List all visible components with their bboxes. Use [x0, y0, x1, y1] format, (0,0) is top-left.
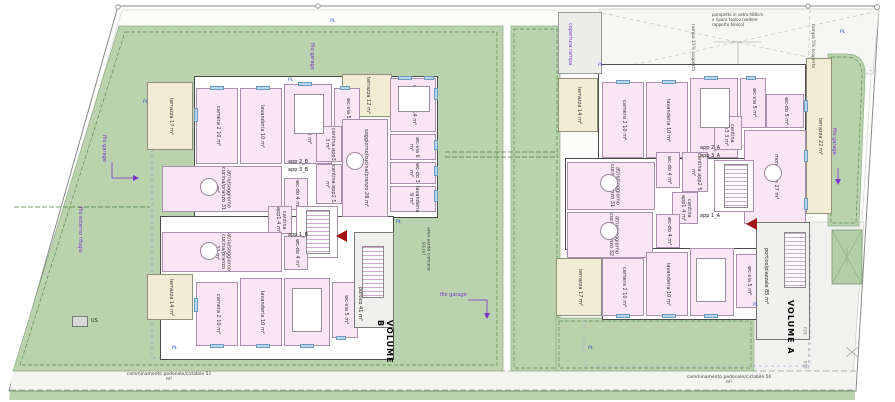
volume-b-title: VOLUME B — [376, 320, 394, 372]
window-marker — [616, 80, 630, 84]
pl-marker: PL — [840, 30, 845, 35]
bed — [398, 86, 430, 112]
room-label: lavanderia 10 m² — [664, 263, 670, 306]
room-label: cantina app1 4 m² — [679, 193, 691, 223]
bed — [696, 258, 726, 302]
room-label: lavanderia 10 m² — [664, 99, 670, 142]
window-marker — [746, 76, 756, 80]
label-app2a: app 2_A — [700, 146, 740, 152]
window-marker — [662, 80, 676, 84]
stairs-b-portico — [362, 246, 384, 298]
window-marker — [804, 150, 808, 162]
rampa-15-label: rampa 15% scoperta — [690, 22, 695, 74]
copertura-rampa-label: copertura rampa — [566, 18, 572, 70]
room-label: wc-do 5 m² — [782, 97, 788, 125]
window-marker — [662, 314, 676, 318]
room-a-lavanderia-lower: lavanderia 10 m² — [646, 252, 688, 316]
stairs-a-core — [724, 164, 748, 208]
bed — [700, 88, 730, 128]
room-label: wc-do 3 m² — [407, 163, 419, 183]
room-b-wcdo4-lower: wc-do 4 m² — [284, 236, 308, 270]
room-label: lavanderia 10 m² — [258, 105, 264, 148]
terrace-a-22: terrazza 22 m² — [806, 58, 832, 214]
window-marker — [256, 344, 270, 348]
room-label: wc-do 4 m² — [665, 156, 671, 184]
filo-esterno-rifugio-label: filo esterno rifugio — [76, 206, 82, 254]
room-b-lavanderia-lower: lavanderia 10 m² — [240, 278, 282, 346]
room-a-wcdo4-upper: wc-do 4 m² — [656, 152, 680, 188]
window-marker — [398, 76, 412, 80]
round-table — [764, 164, 782, 182]
room-label: wc-via 5 m² — [745, 266, 751, 295]
room-label: soggiorno/cucina/pranzo 28 m² — [362, 129, 368, 207]
pl-marker: PL — [172, 346, 177, 351]
window-marker — [340, 86, 350, 90]
filo-garage-label-north: filo garage — [308, 34, 314, 78]
room-label: wc-do 4 m² — [293, 239, 299, 267]
window-marker — [434, 140, 438, 150]
stairs-a-portico — [784, 232, 806, 288]
terrace-label: terrazza 14 m² — [575, 87, 581, 124]
bed — [292, 288, 322, 332]
us-exit-box — [72, 316, 88, 327]
terrace-b-17: terrazza 17 m² — [147, 82, 193, 150]
camminamento-west-label: camminamento pedonale/ciclabile 51 m² — [126, 372, 212, 382]
window-marker — [434, 166, 438, 176]
window-marker — [194, 108, 198, 122]
terrace-label: terrazza 12 m² — [364, 77, 370, 114]
room-b-cantina-app1: cantina app1 4 m² — [268, 206, 292, 234]
terrace-label: terrazza 17 m² — [576, 269, 582, 306]
window-marker — [194, 298, 198, 312]
window-marker — [616, 314, 630, 318]
lawn-south — [556, 318, 754, 371]
pl-marker: PL — [396, 220, 401, 225]
camminamento-east-label: camminamento pedonale/ciclabile 56 m² — [686, 375, 772, 385]
filo-garage-label-center: filo garage — [440, 293, 486, 299]
terrace-label: terrazza 22 m² — [816, 118, 822, 155]
room-label: lavanderia 10 m² — [258, 291, 264, 334]
room-label: camera 2 10 m² — [620, 267, 626, 307]
room-b-camera2-upper: camera 2 10 m² — [196, 88, 238, 164]
room-a-wcdo5: wc-do 5 m² — [766, 94, 804, 128]
room-label: wc-via 5 m² — [750, 88, 756, 117]
terrace-a-17: terrazza 17 m² — [556, 258, 602, 316]
window-marker — [298, 82, 312, 86]
window-marker — [804, 198, 808, 210]
window-marker — [336, 336, 346, 340]
window-marker — [424, 76, 434, 80]
stairs-b-core — [306, 210, 330, 254]
room-b-wcvia6: wc-via 6 m² — [390, 134, 436, 160]
pl-marker: PL — [330, 19, 335, 24]
portico-a-label: portico/piazzale 85 m² — [762, 246, 768, 306]
rampa-5-label: rampa 5% scoperta — [810, 20, 815, 72]
room-a-camera2-lower: camera 2 10 m² — [602, 258, 644, 316]
terrace-label: terrazza 14 m² — [167, 279, 173, 316]
window-marker — [210, 344, 224, 348]
round-table — [600, 174, 618, 192]
pl-marker: PL — [588, 346, 593, 351]
terrace-label: terrazza 17 m² — [167, 98, 173, 135]
ramp-cover-box — [558, 12, 602, 74]
round-table — [200, 178, 218, 196]
label-app3a: app 3_A — [700, 154, 740, 160]
room-label: cantina app3 3 m² — [323, 127, 335, 161]
room-label: lavanderia 9 m² — [407, 186, 419, 212]
verge-strip — [9, 391, 855, 400]
pl-marker: PL — [598, 63, 603, 68]
room-b-lavanderia9: lavanderia 9 m² — [390, 186, 436, 212]
room-label: cantina app2 5 m² — [323, 165, 335, 203]
room-a-lavanderia-upper: lavanderia 10 m² — [646, 82, 688, 158]
label-app1b: app 1_B — [288, 233, 324, 239]
pl-marker: PL — [753, 303, 758, 308]
room-b-camera2-lower: camera 2 10 m² — [196, 282, 238, 346]
room-label: camera 2 10 m² — [214, 294, 220, 334]
lawn-middle — [511, 26, 560, 371]
entrance-marker-icon — [746, 218, 757, 230]
volume-a-title: VOLUME A — [786, 300, 795, 358]
window-marker — [804, 100, 808, 112]
room-b-atrio32: atrio/soggiorno cucina/pranzo 32 m² — [162, 232, 282, 272]
entrance-marker-icon — [336, 230, 347, 242]
window-marker — [704, 76, 718, 80]
room-a-wcdo4-lower: wc-do 4 m² — [656, 214, 680, 248]
room-label: wc-via 6 m² — [407, 135, 419, 159]
site-plan: terrazza 17 m² terrazza 12 m² terrazza 1… — [0, 0, 895, 402]
portico-b-label: portico 41 m² — [356, 282, 362, 326]
parking-p30-label: P30 — [802, 358, 807, 372]
terrace-a-14: terrazza 14 m² — [558, 78, 598, 132]
round-table — [346, 152, 364, 170]
window-marker — [434, 88, 438, 100]
terrace-b-14: terrazza 14 m² — [147, 274, 193, 320]
label-app2b: app 2_B — [288, 160, 324, 166]
room-a-camera2-upper: camera 2 10 m² — [602, 82, 644, 158]
pl-marker: PL — [288, 78, 293, 83]
room-label: cantina app1 4 m² — [274, 207, 286, 233]
window-marker — [300, 344, 314, 348]
pl-marker: PL — [143, 100, 148, 105]
label-app1a: app 1_A — [700, 214, 740, 220]
round-table — [200, 242, 218, 260]
room-label: wc-via 5 m² — [342, 295, 348, 324]
room-b-atrio31: atrio/soggiorno cucina/pranzo 31 m² — [162, 166, 282, 212]
us-label: US — [91, 319, 98, 325]
room-label: camera 2 10 m² — [214, 106, 220, 146]
window-marker — [210, 86, 224, 90]
window-marker — [434, 190, 438, 202]
label-app3b: app 3_B — [288, 168, 324, 174]
filo-garage-label-east: filo garage — [830, 118, 836, 164]
window-marker — [256, 86, 270, 90]
room-label: wc-do 4 m² — [665, 217, 671, 245]
room-b-lavanderia-upper: lavanderia 10 m² — [240, 88, 282, 164]
window-marker — [704, 314, 718, 318]
bed — [294, 94, 324, 134]
room-label: camera 2 10 m² — [620, 100, 626, 140]
room-a-wcvia-upper: wc-via 5 m² — [740, 78, 766, 128]
round-table — [600, 222, 618, 240]
room-label: wc-do 4 m² — [293, 180, 299, 208]
filo-garage-label-west: filo garage — [100, 126, 106, 170]
area-verde-label: area verde comune 93 m² — [420, 226, 430, 272]
parking-p29-label: P29 — [802, 324, 807, 338]
parapetto-note: parapetto in vetro h80cm x riparo fonico… — [712, 12, 764, 27]
room-b-wcdo3: wc-do 3 m² — [390, 162, 436, 184]
